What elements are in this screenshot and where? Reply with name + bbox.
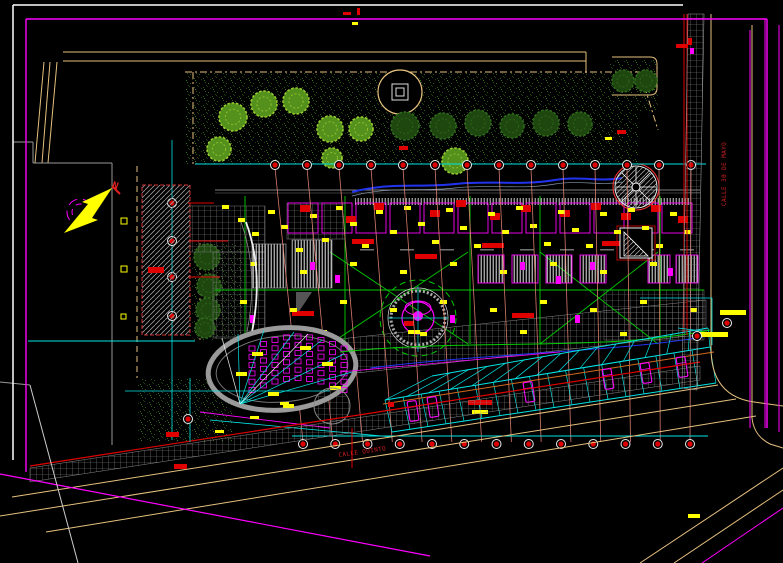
- dim-label: [290, 308, 297, 312]
- fixture: [575, 315, 580, 323]
- text-row: [480, 249, 494, 251]
- dim-label: [350, 262, 357, 266]
- spiral-ramp: [632, 183, 640, 191]
- existing-building: [142, 185, 190, 335]
- dim-label: [446, 208, 453, 212]
- red-mark: [166, 432, 179, 437]
- yellow-mark: [605, 137, 612, 140]
- dim-label: [252, 232, 259, 236]
- tree-dark: [391, 112, 419, 140]
- red-mark: [399, 146, 408, 150]
- red-mark: [404, 321, 414, 326]
- cad-viewport: CALLE QUINTO CALLE 30 DE MAYO N: [0, 0, 783, 563]
- dim-label: [432, 240, 439, 244]
- yellow-label: [720, 310, 746, 315]
- text-row: [400, 249, 414, 251]
- road-nw: [48, 62, 57, 163]
- tree-bright: [349, 117, 373, 141]
- grid-bubble: [623, 441, 628, 446]
- grid-bubble: [300, 441, 305, 446]
- red-mark: [357, 8, 360, 15]
- parking-stall: [602, 344, 616, 365]
- yellow-label: [698, 332, 728, 337]
- dim-label: [322, 238, 329, 242]
- text-row: [440, 249, 454, 251]
- room-fill: [300, 205, 310, 212]
- fixture: [590, 262, 595, 270]
- dim-label: [350, 222, 357, 226]
- dim-label: [420, 332, 427, 336]
- red-bar: [415, 254, 437, 259]
- dim-label: [300, 346, 311, 350]
- text-row: [360, 249, 374, 251]
- boundary-magenta: [0, 474, 430, 556]
- grid-bubble: [400, 162, 405, 167]
- magenta-mark: [690, 48, 694, 54]
- grid-bubble: [558, 441, 563, 446]
- room-fill: [346, 216, 356, 223]
- dim-label: [390, 308, 397, 312]
- grid-bubble: [397, 441, 402, 446]
- tree-dark: [612, 70, 634, 92]
- parking-stall: [708, 328, 710, 347]
- dim-label: [600, 212, 607, 216]
- road-nw: [35, 62, 44, 163]
- tree-dark: [635, 70, 657, 92]
- dim-label: [650, 262, 657, 266]
- red-mark: [617, 130, 626, 134]
- fixture: [310, 262, 315, 270]
- dim-label: [550, 262, 557, 266]
- grid-bubble: [624, 162, 629, 167]
- grid-bubble: [528, 162, 533, 167]
- dim-label: [362, 244, 369, 248]
- text-row: [600, 249, 614, 251]
- dim-label: [516, 206, 523, 210]
- dim-label: [404, 206, 411, 210]
- red-mark: [343, 12, 351, 15]
- red-bar: [482, 243, 504, 248]
- grid-bubble: [432, 162, 437, 167]
- marker: [121, 266, 127, 272]
- dim-label: [240, 300, 247, 304]
- grid-bubble: [464, 162, 469, 167]
- red-mark: [174, 464, 187, 469]
- dim-label: [590, 308, 597, 312]
- marker: [121, 314, 126, 319]
- dim-label: [418, 222, 425, 226]
- yellow-mark: [215, 430, 224, 433]
- dim-label: [376, 210, 383, 214]
- room-module: [478, 255, 504, 283]
- dim-label: [450, 262, 457, 266]
- dim-label: [520, 330, 527, 334]
- yellow-mark: [250, 416, 259, 419]
- dim-label: [600, 270, 607, 274]
- room-fill: [430, 210, 440, 217]
- dim-label: [586, 244, 593, 248]
- tree-dark: [195, 318, 215, 338]
- dim-label: [490, 308, 497, 312]
- red-mark: [688, 38, 692, 45]
- dim-label: [268, 392, 279, 396]
- dim-label: [614, 230, 621, 234]
- dim-label: [296, 248, 303, 252]
- dim-label: [300, 270, 307, 274]
- tree-bright: [219, 103, 247, 131]
- grid-bubble: [496, 162, 501, 167]
- dim-label: [488, 212, 495, 216]
- fixture: [450, 315, 455, 323]
- street-se: [674, 490, 783, 563]
- room-module: [648, 255, 670, 283]
- dim-label: [642, 226, 649, 230]
- dim-label: [400, 270, 407, 274]
- dim-label: [572, 228, 579, 232]
- grid-bubble: [304, 162, 309, 167]
- grid-bubble: [694, 333, 699, 338]
- dim-label: [252, 352, 263, 356]
- red-bar: [512, 313, 534, 318]
- dim-label: [281, 225, 288, 229]
- grid-bubble: [272, 162, 277, 167]
- grid-bubble: [655, 441, 660, 446]
- room-fill: [374, 203, 384, 210]
- north-arrow: [64, 188, 112, 233]
- yellow-mark: [688, 514, 700, 518]
- dim-label: [544, 242, 551, 246]
- tree-dark: [465, 110, 491, 136]
- red-bar: [352, 239, 374, 244]
- canopy-edge: [352, 182, 622, 196]
- dim-label: [628, 208, 635, 212]
- red-mark: [676, 44, 688, 48]
- room-fill: [621, 213, 631, 220]
- fixture: [335, 275, 340, 283]
- dim-label: [502, 230, 509, 234]
- dim-label: [390, 230, 397, 234]
- tree-dark: [430, 113, 456, 139]
- red-mark: [148, 267, 164, 273]
- street-se: [640, 468, 783, 563]
- dim-label: [268, 210, 275, 214]
- road-nw: [42, 62, 50, 163]
- dim-label: [474, 244, 481, 248]
- tree-bright: [317, 116, 343, 142]
- tree-dark: [533, 110, 559, 136]
- tree-bright: [207, 137, 231, 161]
- street-corner: [711, 348, 783, 406]
- dim-label: [640, 300, 647, 304]
- boundary-magenta: [702, 508, 783, 563]
- dim-label: [238, 218, 245, 222]
- grid-bubble: [592, 162, 597, 167]
- dim-label: [222, 205, 229, 209]
- fixture: [520, 262, 525, 270]
- grid-bubble: [724, 320, 729, 325]
- dim-label: [322, 362, 333, 366]
- site-plan-svg: [0, 0, 783, 563]
- dim-label: [340, 300, 347, 304]
- dim-label: [670, 212, 677, 216]
- tree-dark: [500, 114, 524, 138]
- room-fill: [456, 200, 466, 207]
- dim-label: [620, 332, 627, 336]
- dim-label: [236, 372, 247, 376]
- dim-label: [540, 300, 547, 304]
- grid-bubble: [185, 416, 190, 421]
- tree-dark: [568, 112, 592, 136]
- grid-bubble: [526, 441, 531, 446]
- yellow-mark: [280, 402, 289, 405]
- text-row: [520, 249, 534, 251]
- grid-bubble: [656, 162, 661, 167]
- fixture: [668, 268, 673, 276]
- grid-bubble: [429, 441, 434, 446]
- marker: [121, 218, 127, 224]
- grid-bubble: [336, 162, 341, 167]
- dim-label: [460, 226, 467, 230]
- plaza-circle: [378, 70, 422, 114]
- yellow-mark: [352, 22, 358, 25]
- street-label-right: CALLE 30 DE MAYO: [721, 142, 728, 206]
- grid-bubble: [560, 162, 565, 167]
- text-row: [560, 249, 574, 251]
- tree-bright: [283, 88, 309, 114]
- column-axis: [563, 168, 571, 442]
- fixture: [556, 276, 561, 284]
- grid-bubble: [687, 441, 692, 446]
- grid-bubble: [365, 441, 370, 446]
- red-mark: [388, 402, 394, 407]
- grid-bubble: [494, 441, 499, 446]
- tree-bright: [251, 91, 277, 117]
- grid-bubble: [368, 162, 373, 167]
